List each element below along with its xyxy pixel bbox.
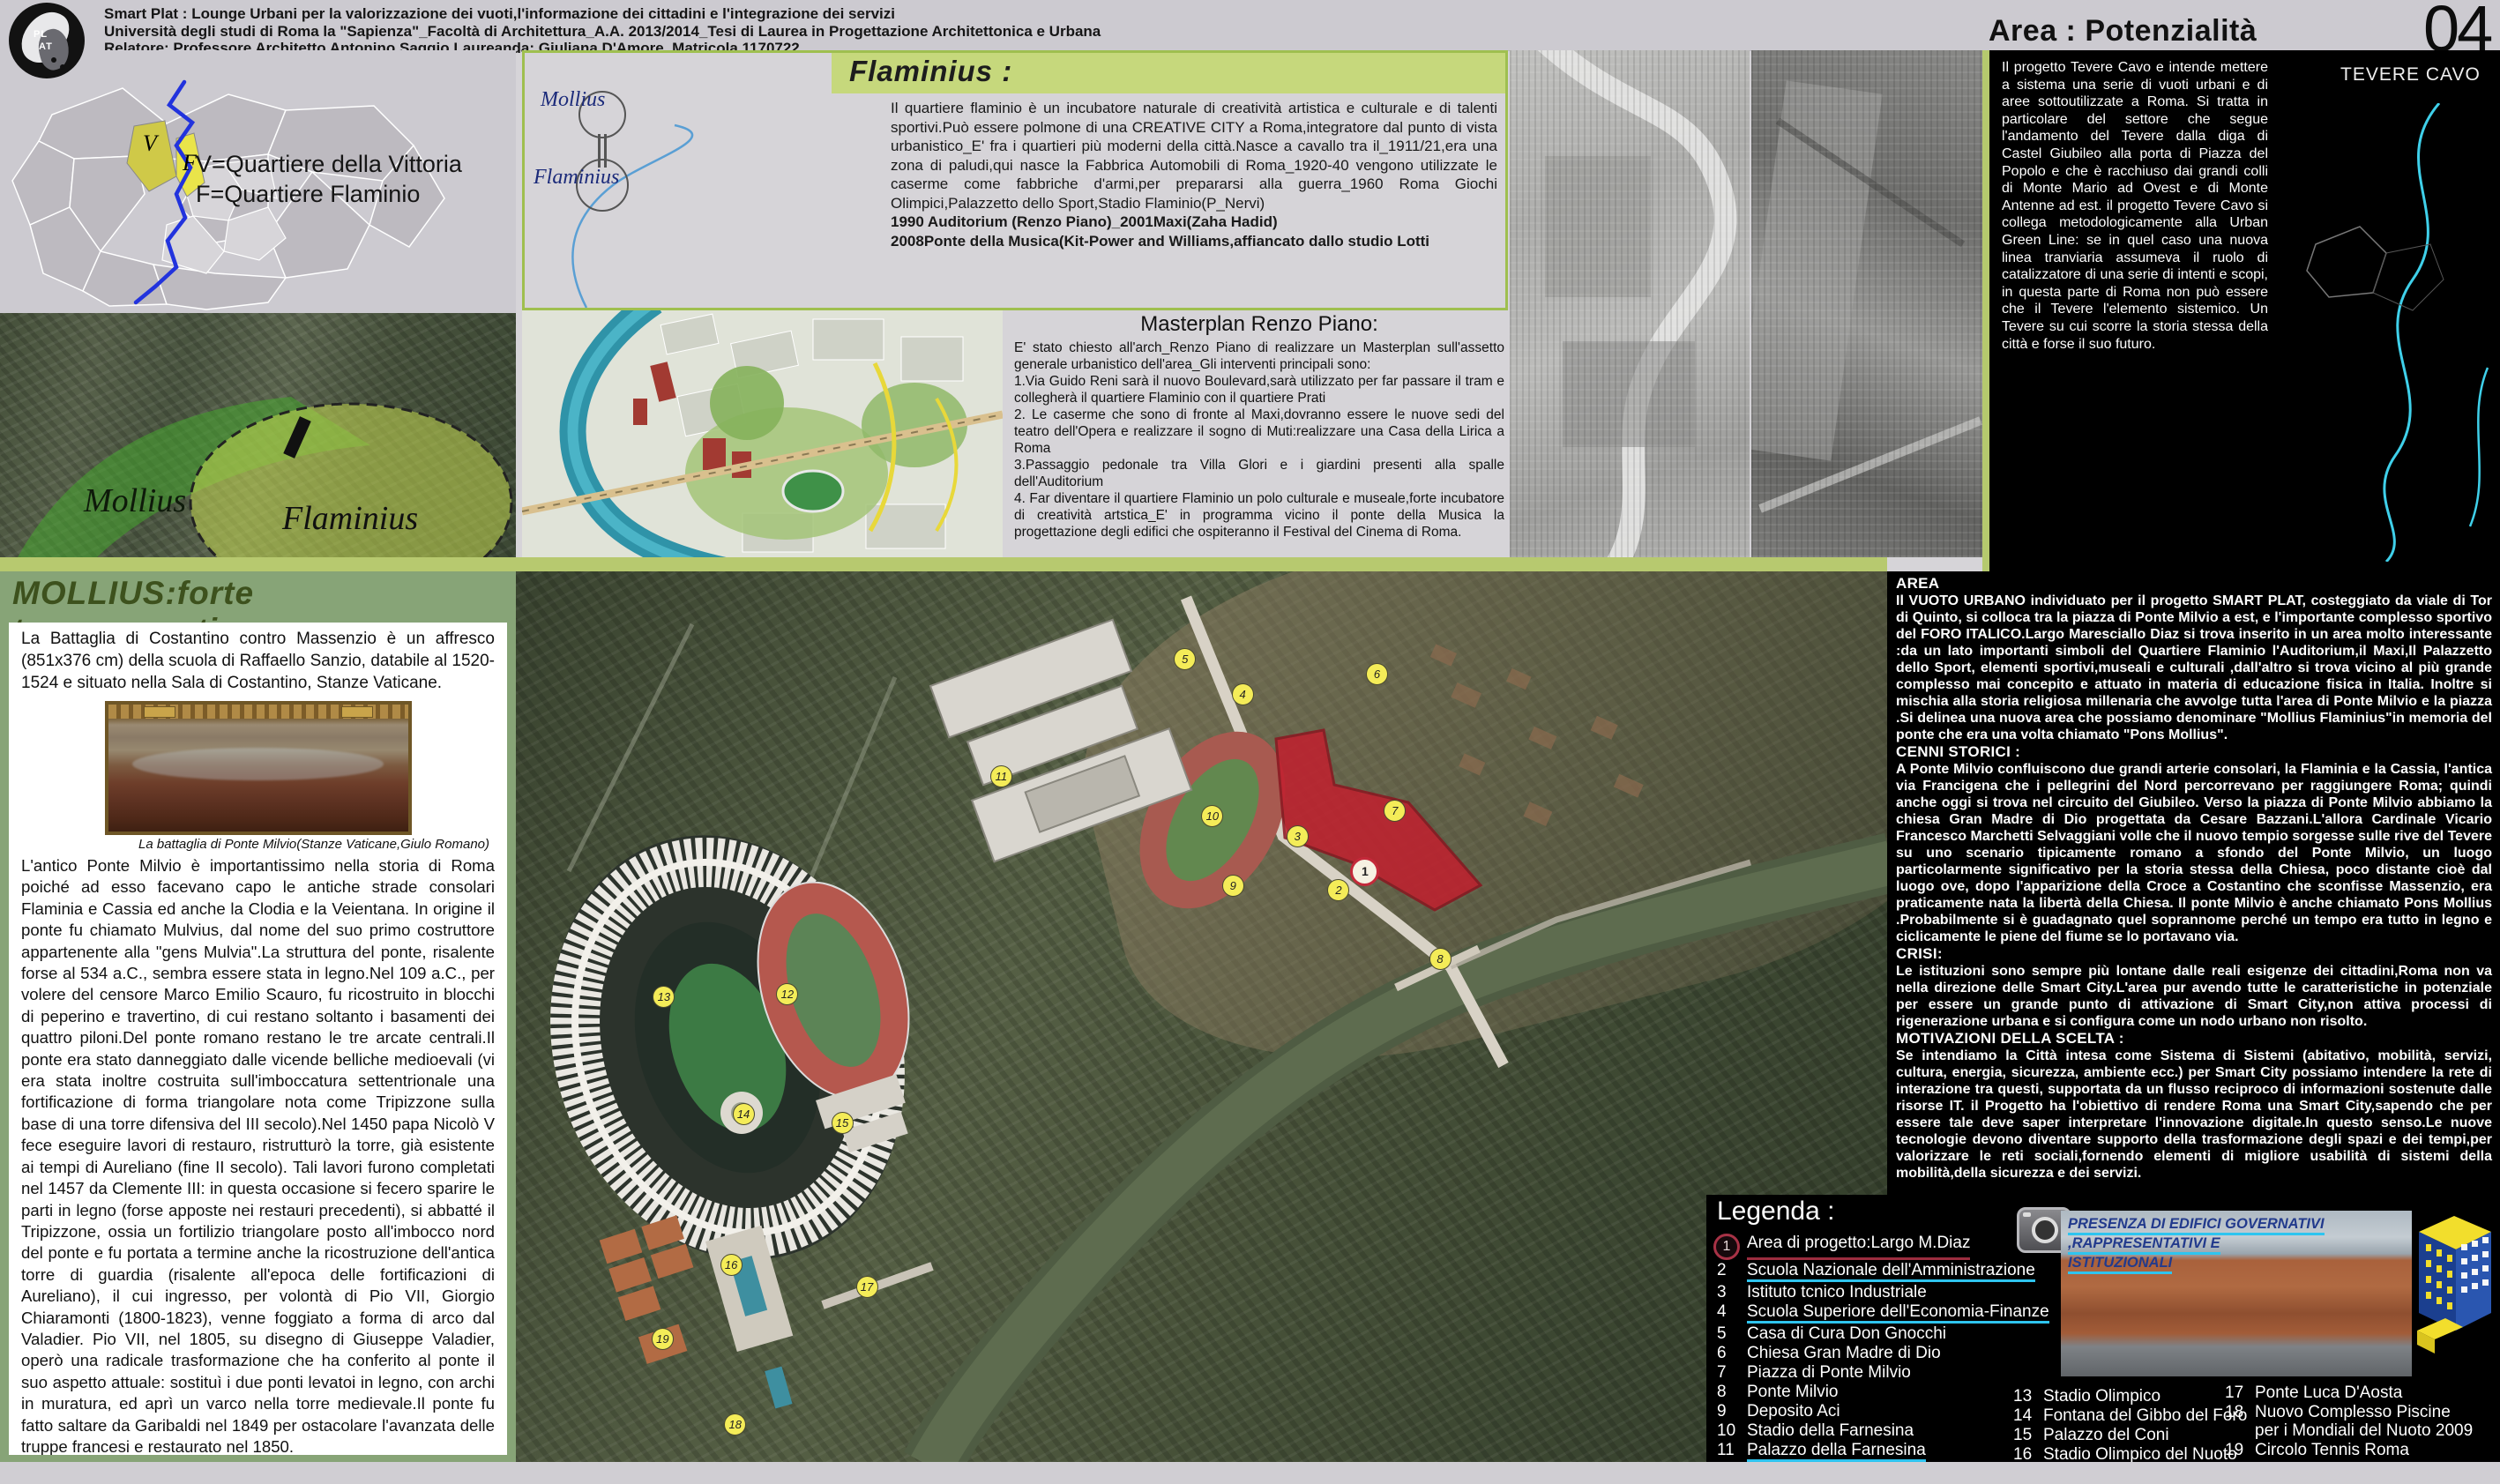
diagram-label-mollius: Mollius xyxy=(540,88,605,111)
header-line-2: Università degli studi di Roma la "Sapie… xyxy=(104,23,1603,41)
area-section: MOTIVAZIONI DELLA SCELTA : Se intendiamo… xyxy=(1896,1030,2492,1182)
map-marker: 4 xyxy=(1232,683,1254,705)
legend-title: Legenda : xyxy=(1717,1197,1834,1227)
masterplan-plan-image xyxy=(522,310,1003,557)
area-section-text: Se intendiamo la Città intesa come Siste… xyxy=(1896,1048,2492,1182)
legend-item: 11Palazzo della Farnesina xyxy=(1717,1441,2008,1462)
map-marker: 17 xyxy=(856,1276,878,1298)
area-sections: AREA Il VUOTO URBANO individuato per il … xyxy=(1896,575,2492,1182)
logo-text-top: PL xyxy=(34,29,48,40)
flaminius-panel: Flaminius : Mollius Flaminius Il quartie… xyxy=(522,50,1508,310)
area-section: AREA Il VUOTO URBANO individuato per il … xyxy=(1896,575,2492,743)
area-section-text: A Ponte Milvio confluiscono due grandi a… xyxy=(1896,761,2492,945)
battle-of-ponte-milvio-fresco xyxy=(105,701,412,835)
area-section-text: Le istituzioni sono sempre più lontane d… xyxy=(1896,963,2492,1030)
thesis-board: PL AT Smart Plat : Lounge Urbani per la … xyxy=(0,0,2500,1484)
legend-column-3: 17 Ponte Luca D'Aosta 18 Nuovo Complesso… xyxy=(2225,1383,2498,1460)
fresco-caption: La battaglia di Ponte Milvio(Stanze Vati… xyxy=(21,837,489,852)
area-section: CENNI STORICI : A Ponte Milvio confluisc… xyxy=(1896,743,2492,945)
masterplan-point: 1.Via Guido Reni sarà il nuovo Boulevard… xyxy=(1014,373,1504,406)
overlay-label-flaminius: Flaminius xyxy=(281,500,418,537)
map-marker: 9 xyxy=(1222,875,1244,897)
legend-item: 7Piazza di Ponte Milvio xyxy=(1717,1363,2008,1382)
legend-item: 4Scuola Superiore dell'Economia-Finanze xyxy=(1717,1302,2008,1324)
map-marker: 13 xyxy=(653,986,675,1008)
map-key-line-1: V=Quartiere della Vittoria xyxy=(196,149,462,179)
legend-item: 17 Ponte Luca D'Aosta xyxy=(2225,1383,2498,1402)
legend-column-1: 1Area di progetto:Largo M.Diaz 2Scuola N… xyxy=(1717,1234,2008,1462)
mollius-history-panel: MOLLIUS:forte toponomastica La Battaglia… xyxy=(0,571,516,1462)
masterplan-point: 3.Passaggio pedonale tra Villa Glori e i… xyxy=(1014,457,1504,490)
tevere-cavo-title: TEVERE CAVO xyxy=(2340,64,2481,86)
photo-caption-line-1: PRESENZA DI EDIFICI GOVERNATIVI ,RAPPRES… xyxy=(2068,1216,2325,1255)
masterplan-points: 1.Via Guido Reni sarà il nuovo Boulevard… xyxy=(1014,373,1504,541)
map-key-line-2: F=Quartiere Flaminio xyxy=(196,179,462,209)
legend-item: 1Area di progetto:Largo M.Diaz xyxy=(1717,1234,2008,1260)
main-aerial-photo: 12345678910111213141516171819 xyxy=(516,571,1887,1464)
area-section-heading: AREA xyxy=(1896,575,2492,593)
tevere-cavo-panel: Il progetto Tevere Cavo e intende metter… xyxy=(1989,50,2500,571)
green-divider-strip xyxy=(1982,50,1989,571)
historic-aerial-photo-2 xyxy=(1751,50,1989,557)
legend-item: 16Stadio Olimpico del Nuoto xyxy=(2013,1445,2234,1462)
legend-item: 3Istituto tcnico Industriale xyxy=(1717,1283,2008,1301)
legend-item: 9Deposito Aci xyxy=(1717,1402,2008,1421)
mollius-panel-content: La Battaglia di Costantino contro Massen… xyxy=(9,623,507,1455)
map-marker: 16 xyxy=(720,1254,743,1276)
header-line-1: Smart Plat : Lounge Urbani per la valori… xyxy=(104,5,1603,23)
legend-item: 15Palazzo del Coni xyxy=(2013,1426,2234,1444)
tevere-cavo-text: Il progetto Tevere Cavo e intende metter… xyxy=(2002,59,2268,353)
legend-item: 19 Circolo Tennis Roma xyxy=(2225,1441,2498,1459)
map-marker: 3 xyxy=(1287,825,1309,847)
flaminius-line-2008: 2008Ponte della Musica(Kit-Power and Wil… xyxy=(891,232,1497,251)
map-marker: 19 xyxy=(652,1328,674,1350)
legend-item: 18 Nuovo Complesso Piscineper i Mondiali… xyxy=(2225,1403,2498,1440)
logo-text-bottom: AT xyxy=(39,41,53,52)
legend-panel: Legenda : 1Area di progetto:Largo M.Diaz… xyxy=(1706,1195,2500,1462)
smart-plat-logo-icon: PL AT xyxy=(9,3,85,78)
stadio-olimpico-del-nuoto xyxy=(705,1226,811,1414)
mollius-panel-title: MOLLIUS:forte toponomastica xyxy=(12,575,504,619)
header-title-block: Smart Plat : Lounge Urbani per la valori… xyxy=(104,5,1603,57)
masterplan-zone: Masterplan Renzo Piano: E' stato chiesto… xyxy=(522,310,1508,557)
legend-item: 2Scuola Nazionale dell'Amministrazione xyxy=(1717,1261,2008,1282)
flaminius-paragraph: Il quartiere flaminio è un incubatore na… xyxy=(891,99,1497,213)
legend-item: 5Casa di Cura Don Gnocchi xyxy=(1717,1324,2008,1343)
area-section-text: Il VUOTO URBANO individuato per il proge… xyxy=(1896,593,2492,743)
legend-item: 6Chiesa Gran Madre di Dio xyxy=(1717,1344,2008,1362)
masterplan-title: Masterplan Renzo Piano: xyxy=(1014,312,1504,337)
fresco-intro: La Battaglia di Costantino contro Massen… xyxy=(21,628,495,694)
green-accent-bar xyxy=(0,557,1887,571)
area-section-heading: CRISI: xyxy=(1896,945,2492,963)
area-section: CRISI: Le istituzioni sono sempre più lo… xyxy=(1896,945,2492,1030)
tevere-cavo-map xyxy=(2280,103,2496,562)
masterplan-text: Masterplan Renzo Piano: E' stato chiesto… xyxy=(1014,312,1504,541)
overlay-label-mollius: Mollius xyxy=(83,482,186,519)
legend-item: 10Stadio della Farnesina xyxy=(1717,1421,2008,1440)
photo-caption-line-2: ISTITUZIONALI xyxy=(2068,1255,2172,1274)
masterplan-point: 4. Far diventare il quartiere Flaminio u… xyxy=(1014,490,1504,541)
footer-strip xyxy=(0,1462,2500,1484)
mollius-flaminius-aerial-overlay: Mollius Flaminius xyxy=(0,313,516,557)
legend-item: 8Ponte Milvio xyxy=(1717,1383,2008,1401)
map-marker: 12 xyxy=(776,983,798,1005)
foro-italico-building-photo: PRESENZA DI EDIFICI GOVERNATIVI ,RAPPRES… xyxy=(2061,1211,2412,1376)
area-section-heading: MOTIVAZIONI DELLA SCELTA : xyxy=(1896,1030,2492,1048)
masterplan-point: 2. Le caserme che sono di fronte al Maxi… xyxy=(1014,406,1504,457)
masterplan-intro: E' stato chiesto all'arch_Renzo Piano di… xyxy=(1014,339,1504,373)
legend-column-2: 13Stadio Olimpico 14Fontana del Gibbo de… xyxy=(2013,1387,2234,1462)
legend-item: 14Fontana del Gibbo del Foro xyxy=(2013,1406,2234,1425)
map-marker: 14 xyxy=(733,1103,755,1125)
rome-districts-map-panel: V F V=Quartiere della Vittoria F=Quartie… xyxy=(0,50,516,313)
map-marker: 11 xyxy=(990,765,1012,787)
ponte-milvio-history-text: L'antico Ponte Milvio è importantissimo … xyxy=(21,855,495,1455)
isometric-buildings-illustration xyxy=(2410,1198,2498,1383)
area-section-heading: CENNI STORICI : xyxy=(1896,743,2492,761)
legend-item: 13Stadio Olimpico xyxy=(2013,1387,2234,1406)
historic-aerial-photo-1 xyxy=(1510,50,1750,557)
flaminius-text: Il quartiere flaminio è un incubatore na… xyxy=(891,99,1497,250)
mollius-flaminius-diagram: Mollius Flaminius xyxy=(525,53,886,308)
diagram-label-flaminius: Flaminius xyxy=(533,166,619,189)
project-area-polygon xyxy=(1276,730,1481,910)
map-key: V=Quartiere della Vittoria F=Quartiere F… xyxy=(196,149,462,209)
map-marker: 8 xyxy=(1429,948,1451,970)
flaminius-line-1990: 1990 Auditorium (Renzo Piano)_2001Maxi(Z… xyxy=(891,213,1497,232)
map-marker: 15 xyxy=(832,1112,854,1134)
